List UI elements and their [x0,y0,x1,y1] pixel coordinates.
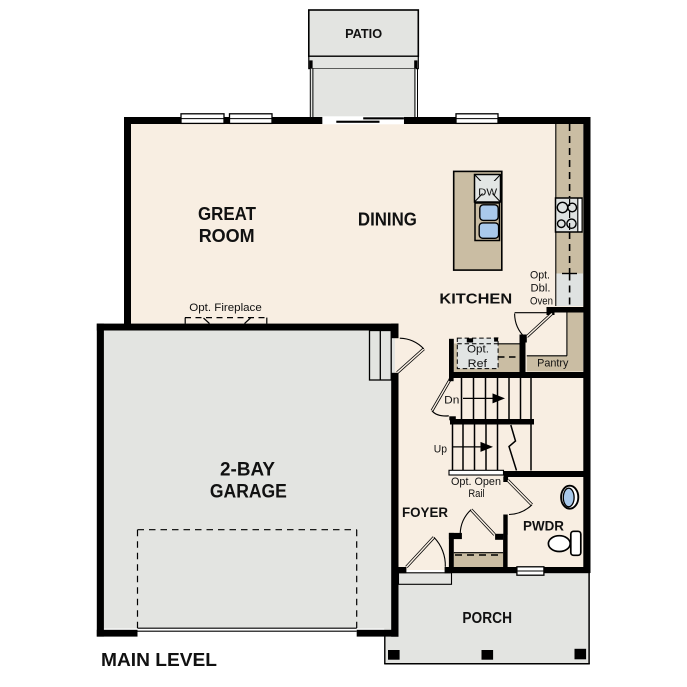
svg-text:Up: Up [434,444,447,456]
svg-text:Oven: Oven [530,295,553,307]
svg-text:MAIN LEVEL: MAIN LEVEL [101,649,217,670]
svg-text:Opt. Open: Opt. Open [451,476,501,488]
svg-text:DINING: DINING [358,209,417,230]
svg-text:DW: DW [478,186,497,198]
svg-text:KITCHEN: KITCHEN [439,291,512,307]
svg-text:2-BAY: 2-BAY [220,460,275,481]
svg-text:Rail: Rail [468,488,484,500]
svg-text:Dbl.: Dbl. [531,282,551,294]
svg-text:GARAGE: GARAGE [210,481,287,502]
svg-text:Dn: Dn [444,395,459,407]
svg-text:GREAT: GREAT [198,203,257,224]
svg-text:Opt.: Opt. [467,343,489,355]
svg-text:Ref: Ref [468,358,488,370]
svg-text:PATIO: PATIO [345,26,382,41]
svg-text:FOYER: FOYER [402,505,448,520]
svg-text:ROOM: ROOM [199,225,255,246]
svg-text:Opt.: Opt. [530,269,550,281]
svg-text:PWDR: PWDR [523,518,564,534]
svg-text:Pantry: Pantry [537,357,569,369]
svg-text:PORCH: PORCH [462,610,512,627]
svg-text:Opt. Fireplace: Opt. Fireplace [189,302,262,314]
